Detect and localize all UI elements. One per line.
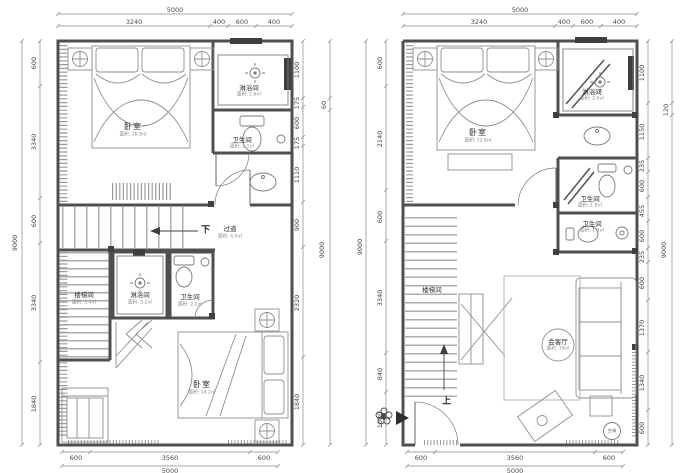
dim-label: 235 xyxy=(639,160,646,172)
dim-label: 600 xyxy=(639,277,646,289)
room-area: 面积: 19㎡ xyxy=(547,348,570,353)
dim-label: 400 xyxy=(558,19,570,26)
entry-door xyxy=(415,402,458,445)
room-area: 面积: 4.0㎡ xyxy=(218,236,242,241)
sofa xyxy=(576,278,636,398)
room-label-shower-top: 淋浴间 xyxy=(239,85,259,92)
dim-label: 3340 xyxy=(31,295,38,312)
sink-hall xyxy=(250,173,276,191)
right-plan-drawing xyxy=(364,12,674,468)
dim-label: 400 xyxy=(268,19,280,26)
sink-low xyxy=(201,258,209,266)
room-area: 面积: 16.8㎡ xyxy=(119,134,146,139)
dim-label: 600 xyxy=(377,57,384,69)
nightstand-fan-left xyxy=(68,48,92,70)
room-label-wc-top: 卫生间 xyxy=(232,137,252,144)
side-table xyxy=(590,396,612,416)
room-label-bedroom-low: 卧室 xyxy=(193,381,211,389)
dim-label: 175 xyxy=(294,137,301,149)
fan-low-bottom xyxy=(255,420,279,442)
room-label-living: 会客厅 xyxy=(548,339,568,346)
left-plan-walls xyxy=(58,41,292,445)
dim-label: 600 xyxy=(639,180,646,192)
floor-drain xyxy=(277,135,285,143)
corridor-arrow-head xyxy=(150,227,160,235)
bed-bench xyxy=(448,154,512,170)
dim-label: 3340 xyxy=(377,290,384,307)
room-label-stair-r: 楼梯间 xyxy=(422,287,442,294)
room-area: 面积: 14.2㎡ xyxy=(188,392,215,397)
dim-label: 3560 xyxy=(162,455,179,462)
dim-label: 5000 xyxy=(512,7,529,14)
dim-label: 600 xyxy=(31,215,38,227)
dim-label: 3340 xyxy=(31,134,38,151)
dim-label: 1100 xyxy=(639,65,646,82)
rug xyxy=(504,276,580,400)
dim-label: 600 xyxy=(581,19,593,26)
room-label-shower-low: 淋浴间 xyxy=(130,292,150,299)
room-label-shower-r: 淋浴间 xyxy=(582,89,602,96)
dim-label: 60 xyxy=(321,101,328,109)
bed-right-plan xyxy=(437,46,535,170)
room-area: 面积: 2.1㎡ xyxy=(178,304,202,309)
room-label-wc1: 卫生间 xyxy=(580,196,600,203)
dim-label: 1150 xyxy=(639,124,646,141)
left-plan-fixtures xyxy=(117,55,288,318)
nightstand-fan-right-2 xyxy=(535,48,558,70)
dim-label: 5000 xyxy=(507,468,524,473)
down-annotation: 下 xyxy=(201,227,211,236)
dim-label: 175 xyxy=(294,97,301,109)
dim-label: 3240 xyxy=(126,19,143,26)
toilet-wc1 xyxy=(598,164,616,197)
dim-label: 1340 xyxy=(639,375,646,392)
dim-label: 235 xyxy=(639,251,646,263)
room-area: 面积: 1.4㎡ xyxy=(580,230,604,235)
door-wc-top xyxy=(216,153,249,186)
room-area: 面积: 1.8㎡ xyxy=(578,205,602,210)
room-area: 面积: 3.4㎡ xyxy=(72,302,96,307)
door-corridor xyxy=(215,170,250,205)
dim-label: 600 xyxy=(31,57,38,69)
shower-head-top xyxy=(245,63,265,83)
desk xyxy=(518,391,573,442)
room-area: 面积: 2.1㎡ xyxy=(230,146,254,151)
toilet-low xyxy=(174,256,194,287)
dim-label: 2140 xyxy=(377,131,384,148)
left-plan-drawing xyxy=(20,12,332,468)
room-area: 面积: 3.2㎡ xyxy=(128,302,152,307)
sink-r xyxy=(584,127,610,145)
tp-holder xyxy=(624,166,632,174)
bed-low xyxy=(178,332,288,418)
room-label-bedroom-r: 卧室 xyxy=(469,129,487,137)
dim-label: 400 xyxy=(613,19,625,26)
dim-label: 9000 xyxy=(12,235,19,252)
dim-label: 5000 xyxy=(167,7,184,14)
dim-label: 600 xyxy=(236,19,248,26)
right-plan-hatches xyxy=(410,45,635,443)
dim-label: 400 xyxy=(213,19,225,26)
dim-label: 1840 xyxy=(31,396,38,413)
dim-label: 600 xyxy=(258,455,270,462)
bedroom-door xyxy=(518,168,556,205)
right-plan-fixtures xyxy=(376,49,633,445)
dim-label: 9000 xyxy=(661,242,668,259)
room-label-bedroom-top: 卧室 xyxy=(124,123,142,131)
dim-label: 600 xyxy=(603,455,615,462)
dim-label: 600 xyxy=(415,455,427,462)
sofa-bench xyxy=(62,388,108,442)
dim-label: 1840 xyxy=(294,394,301,411)
ac-label: 空调 xyxy=(608,429,616,433)
room-label-wc2: 卫生间 xyxy=(582,221,602,228)
dim-label: 3240 xyxy=(471,19,488,26)
dim-label: 1100 xyxy=(294,62,301,79)
dim-label: 9000 xyxy=(357,239,364,256)
dim-label: 1080 xyxy=(377,412,384,429)
dim-label: 9000 xyxy=(319,242,326,259)
room-area: 面积: 2.6㎡ xyxy=(237,94,261,99)
dim-label: 5000 xyxy=(162,468,179,473)
nightstand-fan-left-2 xyxy=(413,48,437,70)
dim-label: 840 xyxy=(377,368,384,380)
fan-low-top xyxy=(255,309,279,331)
room-label-stair: 楼梯间 xyxy=(74,292,94,299)
floor-plan-canvas: 5000 3240 400 600 400 9000 600 3340 600 … xyxy=(0,0,694,473)
room-label-corridor: 过道 xyxy=(224,226,237,233)
dim-label: 2320 xyxy=(294,295,301,312)
room-label-wc-low: 卫生间 xyxy=(180,294,200,301)
winder-stairs xyxy=(116,320,152,368)
dim-label: 3560 xyxy=(507,455,524,462)
dim-label: 600 xyxy=(294,117,301,129)
dim-label: 1110 xyxy=(294,167,301,184)
dim-label: 1370 xyxy=(639,320,646,337)
dim-label: 600 xyxy=(377,211,384,223)
washer xyxy=(616,227,628,239)
dim-label: 600 xyxy=(70,455,82,462)
dim-label: 600 xyxy=(639,422,646,434)
dim-label: 600 xyxy=(639,230,646,242)
dim-label: 900 xyxy=(294,219,301,231)
dim-label: 120 xyxy=(663,104,670,116)
up-annotation: 上 xyxy=(442,398,452,407)
dim-label: 455 xyxy=(639,205,646,217)
plan-drawing xyxy=(0,0,694,473)
room-area: 面积: 2.6㎡ xyxy=(580,98,604,103)
room-area: 面积: 12.6㎡ xyxy=(464,140,491,145)
nightstand-fan-right xyxy=(190,48,214,70)
